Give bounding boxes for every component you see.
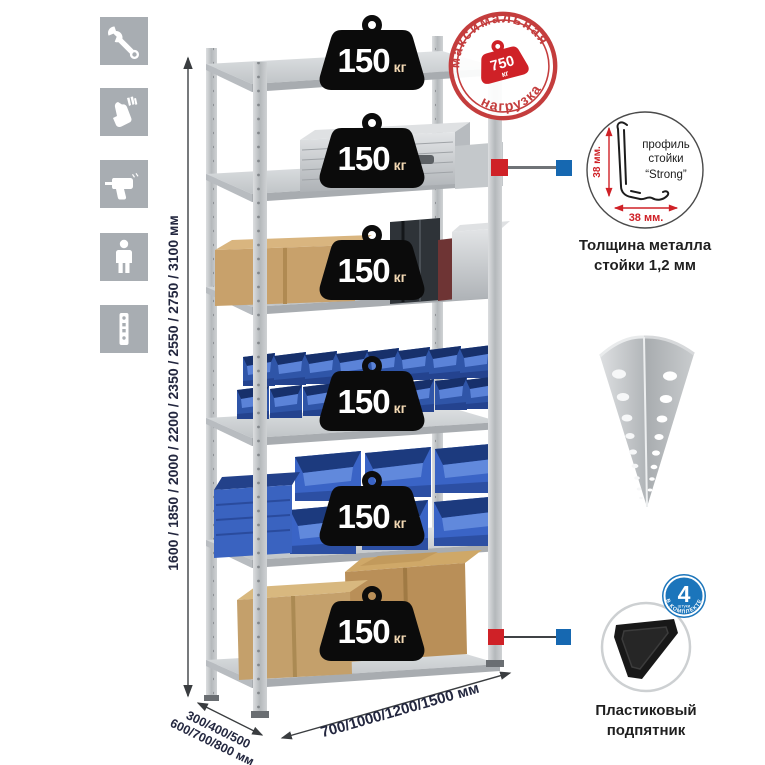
perforated-strip-tile: [100, 305, 148, 353]
shelving-infographic: 1600 / 1850 / 2000 / 2200 / 2350 / 2550 …: [0, 0, 765, 765]
profile-label-2: стойки: [648, 153, 683, 165]
gloves-tile: [100, 88, 148, 136]
shelf-weight-6: 150кг: [318, 585, 426, 665]
foot-caption: Пластиковый подпятник: [576, 701, 716, 740]
perforated-strip-icon: [100, 305, 148, 353]
top-red-marker: [491, 159, 508, 176]
person-tile: [100, 233, 148, 281]
profile-label-3: “Strong”: [645, 169, 687, 181]
bottom-red-marker: [488, 629, 504, 645]
height-dimension-label: 1600 / 1850 / 2000 / 2200 / 2350 / 2550 …: [165, 193, 183, 593]
quantity-badge: 4 штуки В КОМПЛЕКТЕ: [661, 573, 707, 619]
profile-caption: Толщина металла стойки 1,2 мм: [565, 236, 725, 275]
drill-tile: [100, 160, 148, 208]
tools-tile: [100, 17, 148, 65]
drill-icon: [100, 160, 148, 208]
shelf-weight-4: 150кг: [318, 355, 426, 435]
profile-callout-circle: 38 мм. 38 мм. профиль стойки “Strong”: [585, 110, 705, 230]
profile-horizontal-dim: 38 мм.: [629, 212, 664, 224]
bottom-callout-line: [503, 636, 558, 638]
wrench-icon: [100, 17, 148, 65]
bottom-blue-marker: [556, 629, 571, 645]
person-icon: [100, 233, 148, 281]
max-load-stamp: максимальная нагрузка 750 кг: [445, 8, 561, 124]
shelf-weight-3: 150кг: [318, 224, 426, 304]
shelf-weight-1: 150кг: [318, 14, 426, 94]
top-callout-line: [506, 166, 558, 169]
badge-small-text: штуки: [678, 604, 691, 609]
shelf-weight-2: 150кг: [318, 112, 426, 192]
upright-post-figure: [592, 312, 702, 522]
profile-label-1: профиль: [642, 139, 690, 151]
shelf-weight-5: 150кг: [318, 470, 426, 550]
top-blue-marker: [556, 160, 572, 176]
profile-vertical-dim: 38 мм.: [592, 146, 603, 178]
gloves-icon: [100, 88, 148, 136]
